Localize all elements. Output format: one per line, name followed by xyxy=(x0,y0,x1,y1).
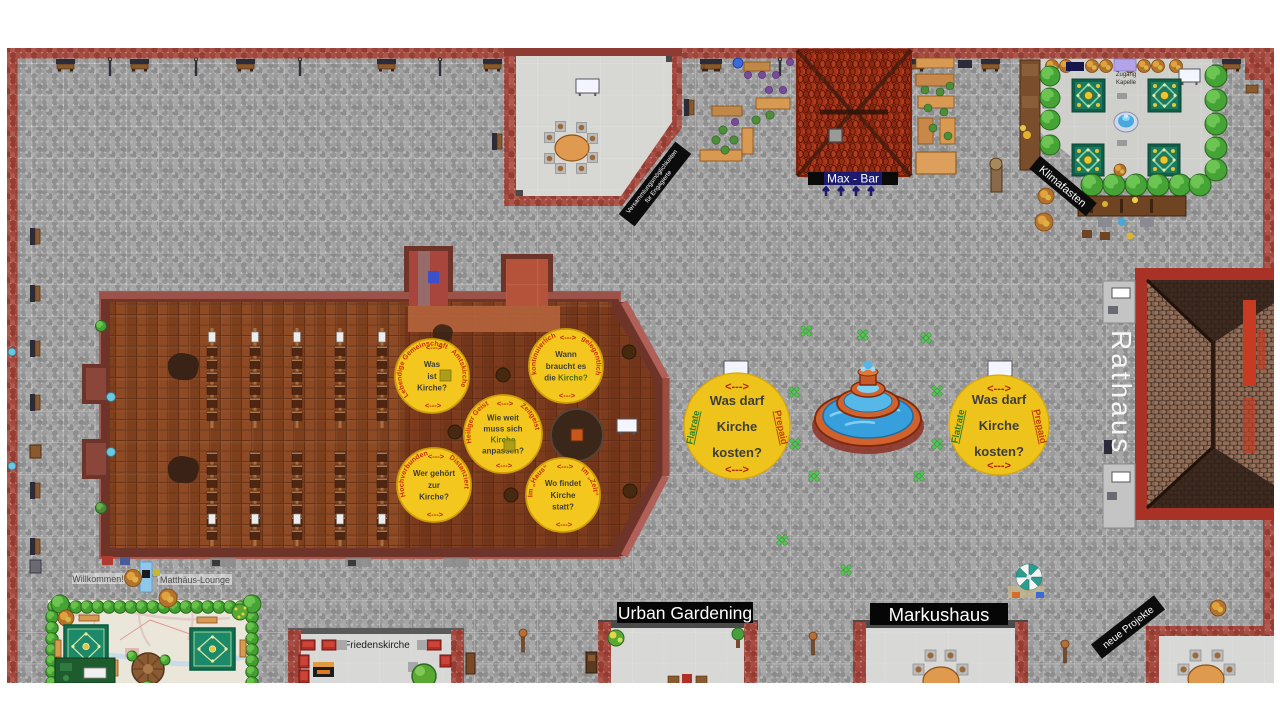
svg-text:<--->: <---> xyxy=(987,460,1011,472)
svg-text:Wann: Wann xyxy=(555,350,577,359)
svg-text:Was darf: Was darf xyxy=(972,392,1027,407)
svg-text:die Kirche?: die Kirche? xyxy=(544,374,588,383)
svg-text:Willkommen!: Willkommen! xyxy=(72,574,124,584)
svg-text:<--->: <---> xyxy=(425,401,442,410)
svg-text:zur: zur xyxy=(428,481,440,490)
svg-text:Wo findet: Wo findet xyxy=(545,479,582,488)
svg-text:Was darf: Was darf xyxy=(710,393,765,408)
svg-text:Wer gehört: Wer gehört xyxy=(413,469,455,478)
svg-text:<--->: <---> xyxy=(560,333,577,342)
svg-text:Kirche: Kirche xyxy=(551,491,576,500)
svg-text:kosten?: kosten? xyxy=(974,444,1024,459)
svg-text:Matthäus-Lounge: Matthäus-Lounge xyxy=(160,575,230,585)
svg-text:<--->: <---> xyxy=(725,381,749,393)
svg-text:<--->: <---> xyxy=(427,510,444,519)
svg-text:Urban Gardening: Urban Gardening xyxy=(618,603,752,623)
svg-text:muss sich: muss sich xyxy=(483,424,522,433)
svg-text:braucht es: braucht es xyxy=(546,362,587,371)
svg-text:<--->: <---> xyxy=(725,464,749,476)
svg-text:Friedenskirche: Friedenskirche xyxy=(344,640,410,651)
svg-text:Wie weit: Wie weit xyxy=(487,413,519,422)
svg-text:Kirche?: Kirche? xyxy=(417,384,447,393)
svg-text:Kirche?: Kirche? xyxy=(419,493,449,502)
svg-text:<--->: <---> xyxy=(556,520,573,529)
svg-text:Zugang: Zugang xyxy=(1116,72,1136,78)
svg-text:statt?: statt? xyxy=(552,503,574,512)
svg-text:Kirche: Kirche xyxy=(717,419,757,434)
svg-text:<--->: <---> xyxy=(497,399,514,408)
svg-text:Kapelle: Kapelle xyxy=(1116,80,1137,86)
svg-text:<--->: <---> xyxy=(496,461,513,470)
svg-text:Kirche: Kirche xyxy=(979,418,1019,433)
svg-text:Was: Was xyxy=(424,360,441,369)
svg-text:ist: ist xyxy=(427,372,437,381)
svg-text:Rathaus: Rathaus xyxy=(1106,330,1137,455)
svg-text:<--->: <---> xyxy=(428,452,445,461)
svg-text:Markushaus: Markushaus xyxy=(889,604,990,625)
svg-text:Max - Bar: Max - Bar xyxy=(827,172,879,186)
svg-text:<--->: <---> xyxy=(557,462,574,471)
svg-text:anpassen?: anpassen? xyxy=(482,446,524,455)
svg-text:<--->: <---> xyxy=(559,391,576,400)
svg-text:<--->: <---> xyxy=(426,343,443,352)
svg-text:kosten?: kosten? xyxy=(712,445,762,460)
